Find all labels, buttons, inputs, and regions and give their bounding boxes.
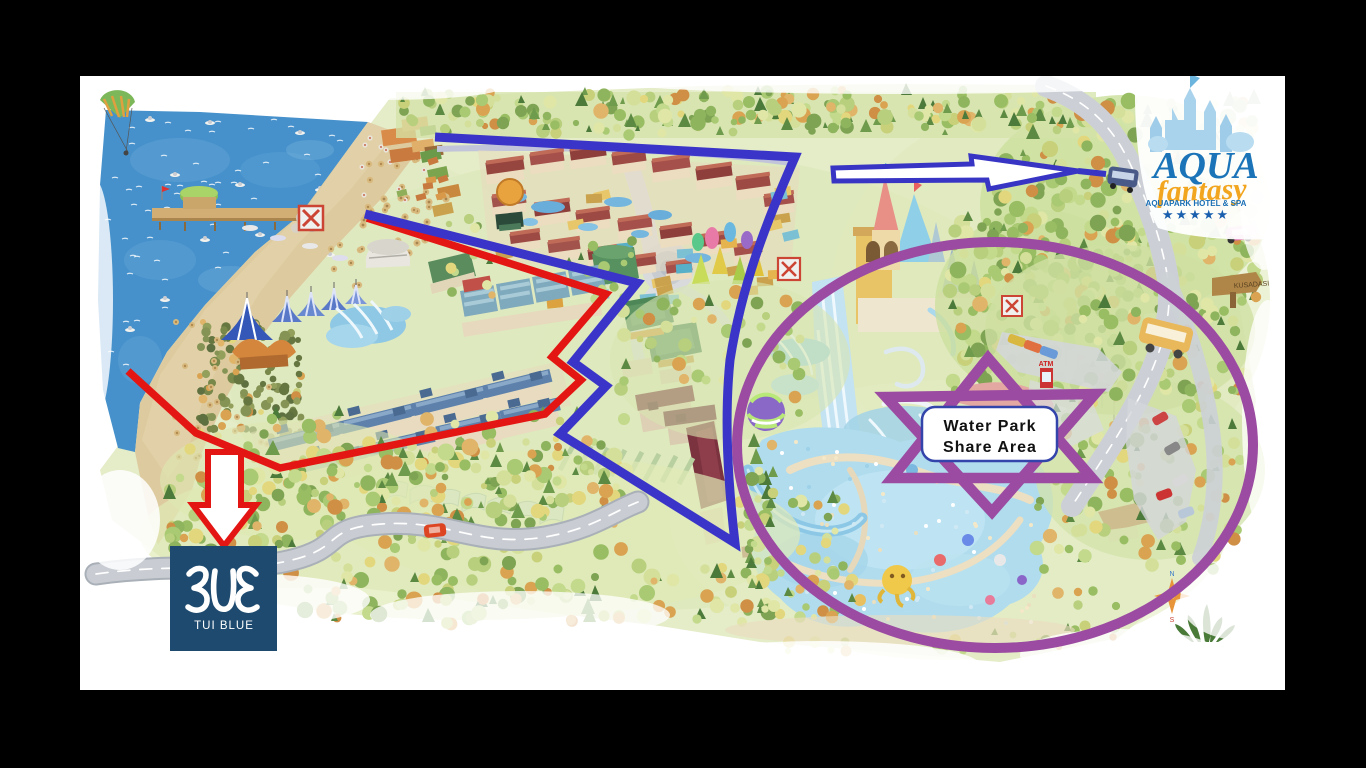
- svg-text:Water Park: Water Park: [944, 418, 1037, 435]
- svg-text:ATM: ATM: [1039, 361, 1054, 368]
- svg-text:Share Area: Share Area: [943, 439, 1037, 456]
- svg-text:S: S: [1170, 617, 1175, 624]
- svg-text:★★★★★: ★★★★★: [1162, 207, 1230, 222]
- svg-text:N: N: [1169, 571, 1174, 578]
- svg-text:TUI BLUE: TUI BLUE: [194, 620, 254, 632]
